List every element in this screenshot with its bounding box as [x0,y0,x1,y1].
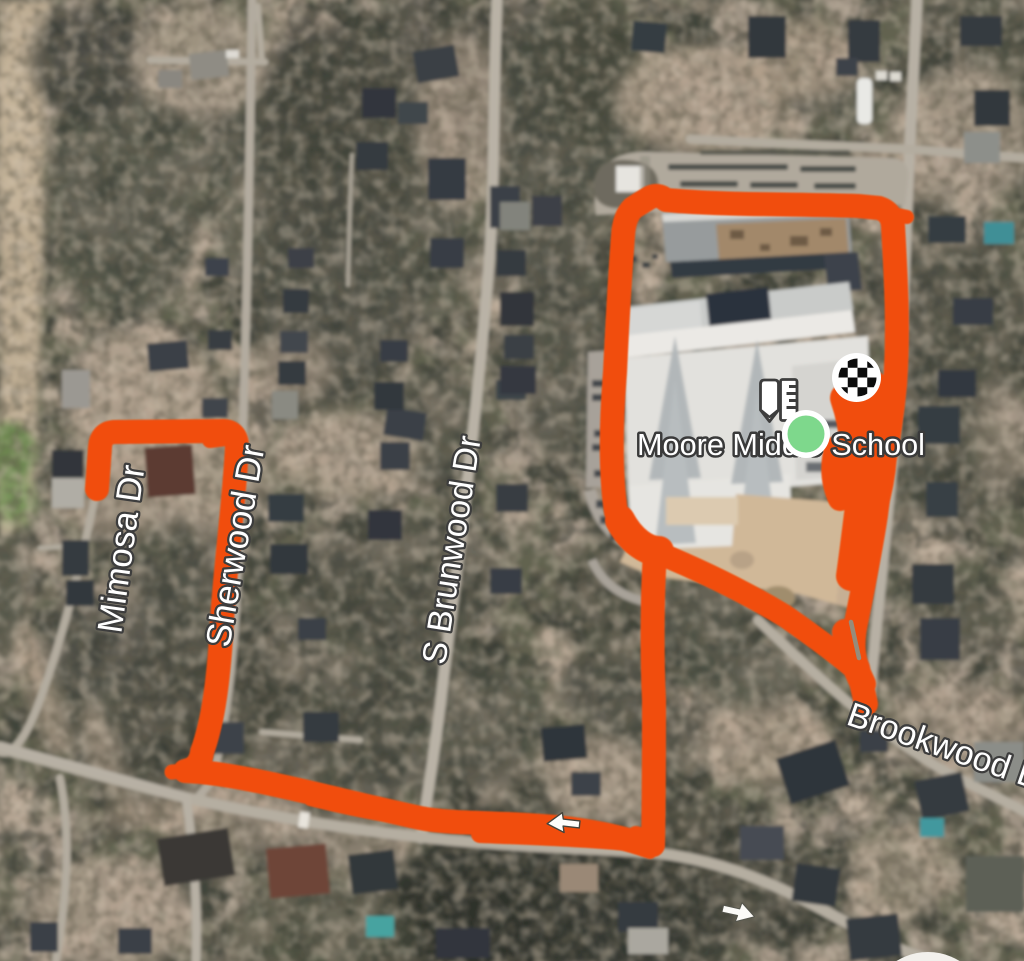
svg-text:Moore Middle School: Moore Middle School [637,427,925,462]
